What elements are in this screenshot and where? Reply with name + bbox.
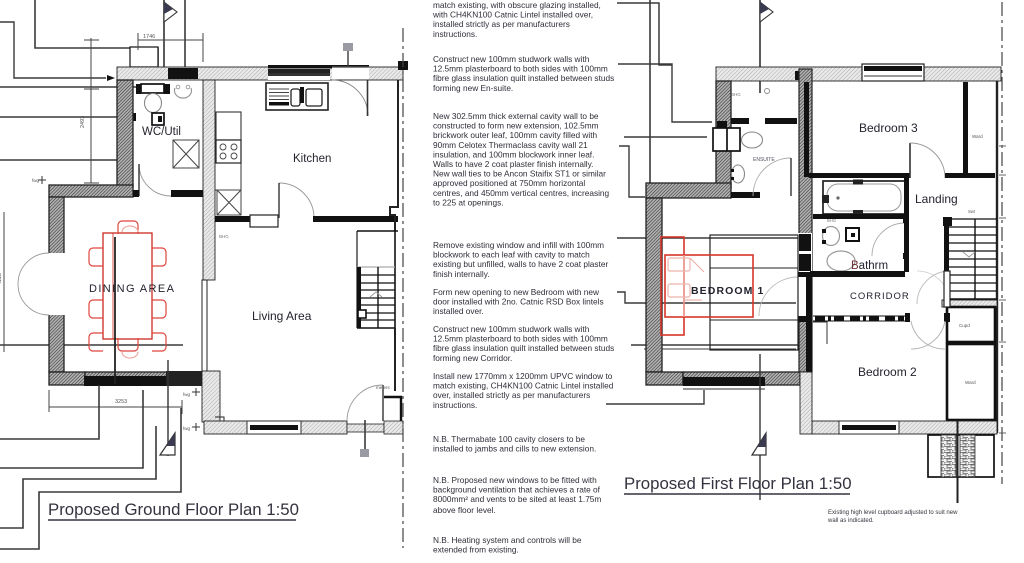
svg-text:Walls to have 2 coat plaster f: Walls to have 2 coat plaster finish inte… (433, 159, 593, 169)
svg-text:Bedroom 2: Bedroom 2 (858, 365, 917, 379)
svg-text:Swt: Swt (968, 209, 976, 214)
svg-text:fibre glass insulation quilt i: fibre glass insulation quilt installed b… (433, 343, 614, 353)
svg-text:BHG: BHG (827, 218, 836, 223)
svg-text:fibre glass insulation quilt i: fibre glass insulation quilt installed b… (433, 73, 614, 83)
svg-text:centres, and 450mm vertical ce: centres, and 450mm vertical centres, inc… (433, 188, 610, 198)
svg-text:Install new 1770mm x 1200mm UP: Install new 1770mm x 1200mm UPVC window … (433, 371, 613, 381)
svg-text:Ward: Ward (972, 134, 983, 139)
svg-text:instructions.: instructions. (433, 400, 477, 410)
svg-text:DINING AREA: DINING AREA (89, 283, 175, 295)
svg-text:forming new Corridor.: forming new Corridor. (433, 353, 512, 363)
svg-text:Cupd: Cupd (959, 323, 970, 328)
svg-text:extended from existing.: extended from existing. (433, 545, 519, 555)
svg-text:Bedroom 3: Bedroom 3 (859, 121, 918, 135)
svg-text:8000mm² and vents to be sited: 8000mm² and vents to be sited at least 1… (433, 494, 601, 504)
svg-text:Remove existing window and inf: Remove existing window and infill with 1… (433, 240, 604, 250)
svg-text:door installed with 2no. Catni: door installed with 2no. Catnic RSD Box … (433, 297, 604, 307)
svg-text:approved positioned at 750mm h: approved positioned at 750mm horizontal (433, 178, 585, 188)
svg-text:above floor level.: above floor level. (433, 505, 496, 515)
svg-text:insulation, and 100mm blockwor: insulation, and 100mm blockwork inner le… (433, 149, 594, 159)
svg-text:1746: 1746 (143, 34, 155, 40)
svg-text:BHG: BHG (731, 92, 741, 97)
svg-text:finish internally.: finish internally. (433, 269, 490, 279)
svg-text:Living Area: Living Area (252, 309, 312, 323)
svg-text:New wall ties to be Ancon Stai: New wall ties to be Ancon Staifix ST1 or… (433, 169, 606, 179)
svg-text:Existing high level cupboard a: Existing high level cupboard adjusted to… (828, 510, 958, 516)
svg-text:3253: 3253 (115, 399, 127, 405)
svg-text:Construct new 100mm studwork w: Construct new 100mm studwork walls with (433, 54, 590, 64)
svg-text:ENSUITE: ENSUITE (753, 157, 775, 163)
svg-text:CORRIDOR: CORRIDOR (850, 291, 910, 302)
svg-text:to 225 at openings.: to 225 at openings. (433, 197, 504, 207)
svg-text:Landing: Landing (915, 192, 958, 206)
svg-text:installed to jambs and cills t: installed to jambs and cills to new exte… (433, 444, 596, 454)
svg-text:Construct new 100mm studwork w: Construct new 100mm studwork walls with (433, 324, 590, 334)
svg-text:instructions.: instructions. (433, 29, 477, 39)
svg-text:N.B. Proposed new windows to: N.B. Proposed new windows to be fitted w… (433, 475, 597, 485)
svg-text:fwg: fwg (183, 392, 191, 397)
svg-text:Kitchen: Kitchen (293, 153, 331, 165)
svg-text:match existing, CH4KN100 Catn: match existing, CH4KN100 Catnic Lintel i… (433, 381, 614, 391)
svg-text:over, installed strictly as pe: over, installed strictly as per manufact… (433, 390, 590, 400)
svg-text:90mm Celotex Thermaclass cavit: 90mm Celotex Thermaclass cavity wall 21 (433, 140, 588, 150)
svg-text:WC/Util: WC/Util (142, 126, 181, 138)
svg-text:wall as indicated.: wall as indicated. (827, 518, 874, 524)
svg-text:blockwork to each leaf with ca: blockwork to each leaf with cavity to ma… (433, 250, 590, 260)
svg-text:installed over.: installed over. (433, 306, 484, 316)
svg-text:N.B. Thermabate 100 cavity clo: N.B. Thermabate 100 cavity closers to be (433, 434, 585, 444)
svg-text:installed strictly as per manu: installed strictly as per manufacturers (433, 19, 570, 29)
svg-text:fwg: fwg (183, 426, 191, 431)
svg-text:Form new opening to new Bedroo: Form new opening to new Bedroom with new (433, 287, 600, 297)
svg-text:12.5mm plasterboard to both si: 12.5mm plasterboard to both sides with 1… (433, 334, 608, 344)
svg-text:BEDROOM 1: BEDROOM 1 (691, 285, 765, 297)
svg-text:N.B. Heating system and contro: N.B. Heating system and controls will be (433, 535, 582, 545)
svg-text:constructed to form new extens: constructed to form new extension, 102.5… (433, 121, 599, 131)
svg-text:Ward: Ward (965, 380, 976, 385)
svg-text:Proposed Ground Floor Plan 1:5: Proposed Ground Floor Plan 1:50 (48, 500, 299, 519)
svg-text:New 302.5mm thick external cav: New 302.5mm thick external cavity wall t… (433, 111, 599, 121)
svg-text:Bathrm: Bathrm (851, 260, 888, 272)
svg-text:brickwork outer leaf, 100mm ca: brickwork outer leaf, 100mm cavity fille… (433, 130, 598, 140)
svg-text:existing but unfilled, walls t: existing but unfilled, walls to have 2 c… (433, 259, 608, 269)
svg-text:4118: 4118 (0, 273, 3, 285)
svg-text:match existing, with obscure g: match existing, with obscure glazing ins… (433, 0, 601, 10)
svg-text:BHG: BHG (219, 234, 229, 239)
svg-text:forming new En-suite.: forming new En-suite. (433, 83, 513, 93)
svg-text:12.5mm plasterboard to both si: 12.5mm plasterboard to both sides with 1… (433, 64, 608, 74)
svg-text:2493: 2493 (80, 116, 86, 128)
svg-text:meters: meters (376, 385, 391, 390)
svg-text:with CH4KN100 Catnic Lintel i: with CH4KN100 Catnic Lintel installed ov… (432, 10, 593, 20)
svg-text:background ventilation that ac: background ventilation that achieves a r… (433, 485, 601, 495)
svg-text:Proposed First Floor Plan 1:50: Proposed First Floor Plan 1:50 (624, 474, 852, 493)
